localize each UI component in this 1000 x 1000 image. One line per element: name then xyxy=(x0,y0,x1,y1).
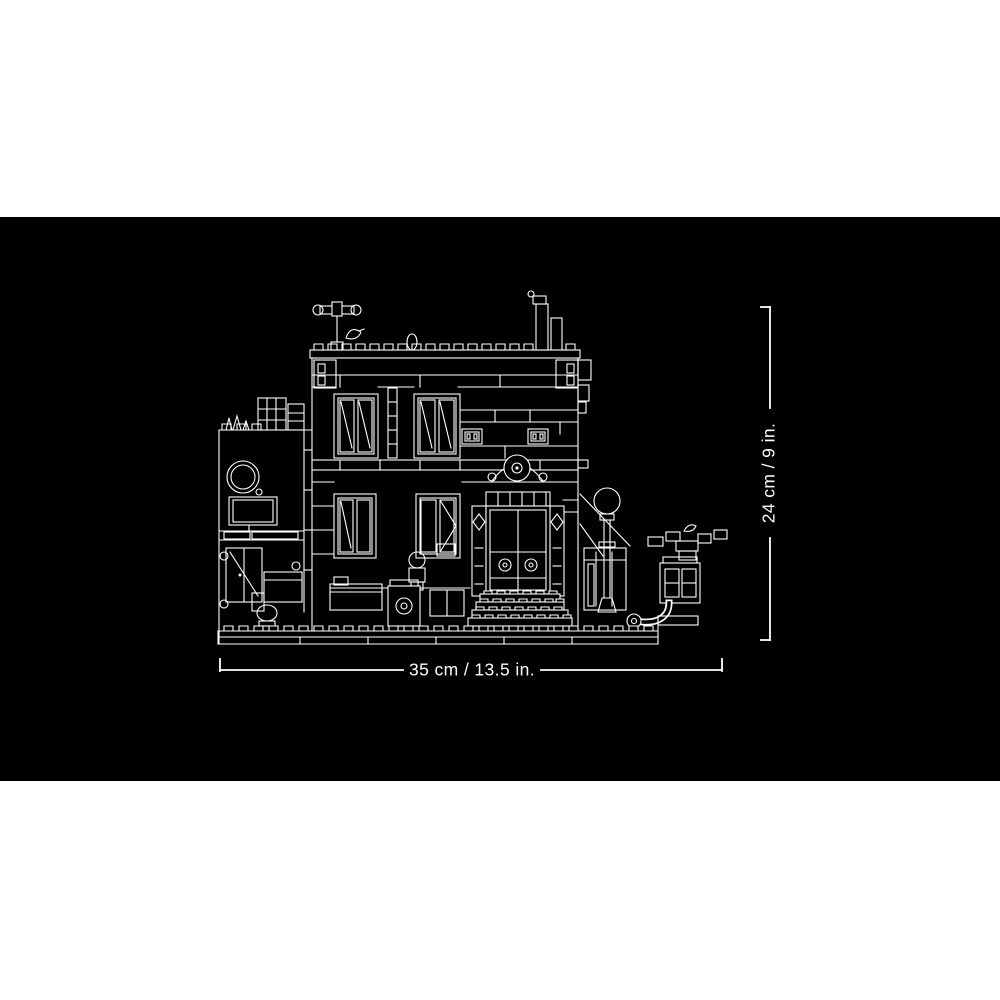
vent-windows xyxy=(462,429,548,444)
ground-floor-group xyxy=(312,455,578,631)
street-lamp xyxy=(594,488,620,612)
mailbox-device xyxy=(660,557,700,603)
television xyxy=(229,497,277,531)
width-dimension-label: 35 cm / 13.5 in. xyxy=(409,660,535,681)
street-elements-group xyxy=(580,488,727,628)
upper-floor-group xyxy=(312,358,591,460)
product-image-page: 35 cm / 13.5 in. 24 cm / 9 in. xyxy=(0,0,1000,1000)
product-image-stage: 35 cm / 13.5 in. 24 cm / 9 in. xyxy=(0,217,1000,781)
roof-group xyxy=(310,291,580,388)
upper-window-left xyxy=(334,394,378,458)
roof-trellis xyxy=(258,398,304,430)
entry-double-doors xyxy=(486,506,550,594)
porthole-window xyxy=(227,461,262,495)
floating-plate-row xyxy=(648,525,727,560)
height-dimension-label: 24 cm / 9 in. xyxy=(759,423,780,524)
ground-window-right xyxy=(416,494,460,558)
left-annex-group xyxy=(219,398,312,643)
floor-slab xyxy=(312,460,588,470)
baseplate-group xyxy=(218,616,658,644)
entrance-steps xyxy=(468,591,572,626)
bird-silhouette xyxy=(346,329,364,339)
upper-window-right xyxy=(414,394,460,458)
ground-window-left xyxy=(334,494,376,558)
lego-building-line-art xyxy=(0,217,1000,781)
wardrobe xyxy=(226,548,262,602)
chimney-vent xyxy=(528,291,562,350)
washing-machine xyxy=(388,580,420,626)
roof-antenna xyxy=(313,302,361,350)
annex-shelf xyxy=(219,531,304,540)
